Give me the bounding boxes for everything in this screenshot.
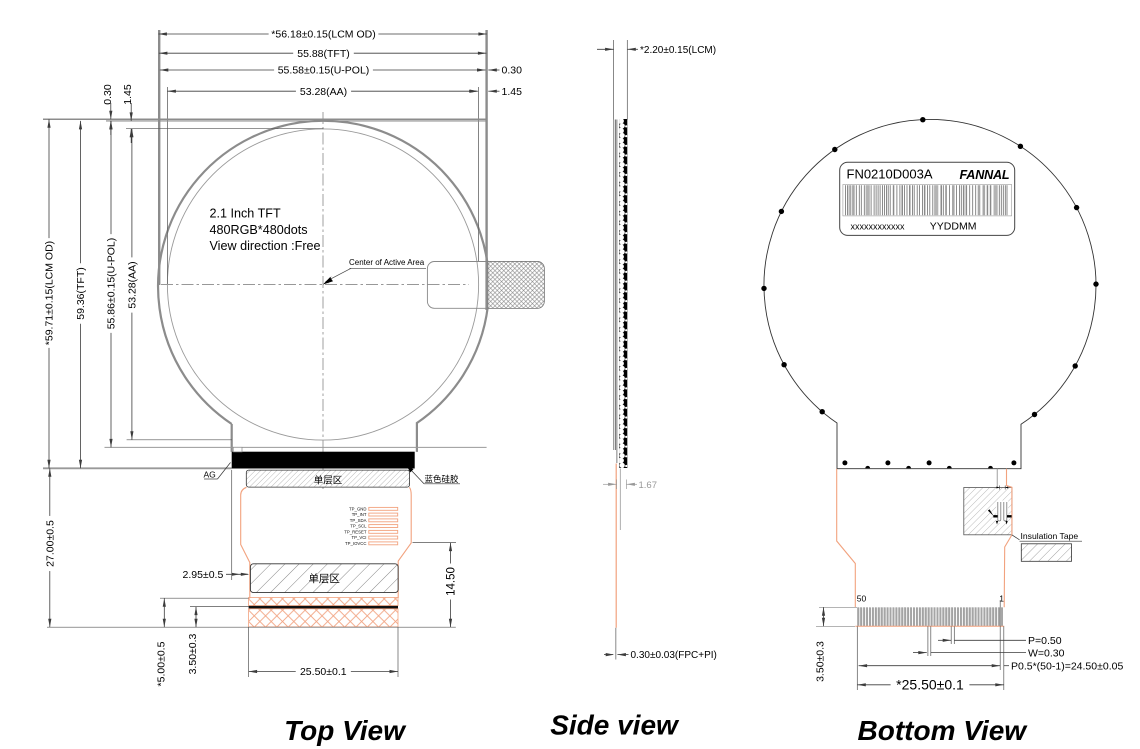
svg-text:55.58±0.15(U-POL): 55.58±0.15(U-POL) (278, 65, 370, 77)
svg-text:1.67: 1.67 (639, 480, 658, 491)
svg-text:25.50±0.1: 25.50±0.1 (300, 666, 347, 678)
svg-text:P=0.50: P=0.50 (1028, 635, 1062, 647)
svg-text:Center of Active Area: Center of Active Area (349, 258, 425, 267)
svg-text:W=0.30: W=0.30 (1028, 647, 1065, 659)
svg-text:Top View: Top View (284, 715, 407, 746)
svg-text:*59.71±0.15(LCM OD): *59.71±0.15(LCM OD) (44, 241, 56, 345)
svg-text:Insulation Tape: Insulation Tape (1021, 531, 1079, 541)
svg-text:59.36(TFT): 59.36(TFT) (75, 267, 87, 320)
svg-text:2.95±0.5: 2.95±0.5 (183, 569, 224, 581)
svg-text:TP_INT: TP_INT (352, 512, 367, 517)
svg-text:*25.50±0.1: *25.50±0.1 (896, 677, 964, 693)
svg-text:3.50±0.3: 3.50±0.3 (187, 633, 199, 674)
svg-text:Bottom View: Bottom View (858, 715, 1029, 746)
svg-text:55.86±0.15(U-POL): 55.86±0.15(U-POL) (106, 238, 118, 330)
svg-text:TP_GND: TP_GND (349, 506, 366, 511)
svg-text:Side view: Side view (550, 710, 680, 741)
svg-text:53.28(AA): 53.28(AA) (126, 261, 138, 308)
svg-text:TP_SDA: TP_SDA (350, 518, 367, 523)
svg-text:1.45: 1.45 (122, 84, 134, 105)
svg-text:0.30±0.03(FPC+PI): 0.30±0.03(FPC+PI) (631, 650, 717, 661)
svg-text:*2.20±0.15(LCM): *2.20±0.15(LCM) (640, 45, 716, 56)
svg-text:0.30: 0.30 (502, 65, 523, 77)
svg-text:*5.00±0.5: *5.00±0.5 (156, 641, 168, 686)
svg-text:0.30: 0.30 (102, 84, 114, 105)
svg-text:P0.5*(50-1)=24.50±0.05: P0.5*(50-1)=24.50±0.05 (1011, 660, 1123, 672)
svg-text:3.50±0.3: 3.50±0.3 (815, 641, 827, 682)
svg-text:FN0210D003A: FN0210D003A (847, 167, 933, 182)
svg-text:2.1 Inch TFT: 2.1 Inch TFT (210, 206, 281, 220)
svg-text:FANNAL: FANNAL (960, 168, 1010, 182)
svg-text:TP_RESET: TP_RESET (344, 529, 367, 534)
svg-text:55.88(TFT): 55.88(TFT) (297, 48, 350, 60)
svg-text:YYDDMM: YYDDMM (930, 221, 977, 233)
svg-text:TP_IOVCC: TP_IOVCC (345, 541, 367, 546)
svg-text:TP_SCL: TP_SCL (350, 524, 367, 529)
svg-text:View direction :Free: View direction :Free (210, 239, 321, 253)
svg-text:蓝色硅胶: 蓝色硅胶 (425, 474, 460, 484)
svg-text:1.45: 1.45 (502, 86, 523, 98)
svg-text:480RGB*480dots: 480RGB*480dots (210, 223, 308, 237)
svg-text:*56.18±0.15(LCM OD): *56.18±0.15(LCM OD) (271, 29, 375, 41)
svg-text:27.00±0.5: 27.00±0.5 (44, 520, 56, 567)
svg-text:xxxxxxxxxxxx: xxxxxxxxxxxx (851, 222, 906, 232)
svg-text:53.28(AA): 53.28(AA) (300, 86, 347, 98)
svg-text:TP_VCI: TP_VCI (351, 535, 366, 540)
svg-text:50: 50 (857, 594, 867, 604)
svg-text:14.50: 14.50 (445, 567, 457, 596)
svg-text:AG: AG (204, 470, 216, 480)
svg-text:单层区: 单层区 (308, 573, 340, 585)
svg-text:单层区: 单层区 (314, 474, 343, 486)
